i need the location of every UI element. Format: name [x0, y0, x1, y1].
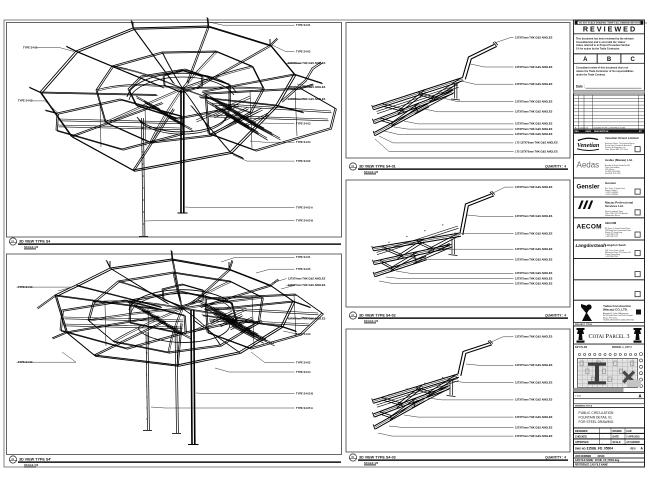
svg-text:1:1000: 1:1000: [575, 396, 582, 398]
svg-text:31520: 31520: [598, 455, 606, 458]
svg-text:Aedas: Aedas: [577, 161, 600, 170]
svg-text:Fax (853) 2875 3700: Fax (853) 2875 3700: [605, 173, 621, 175]
svg-text:127X75mm THK G&S ANGLES: 127X75mm THK G&S ANGLES: [515, 281, 553, 285]
svg-text:127X75mm THK G&S ANGLES: 127X75mm THK G&S ANGLES: [515, 127, 553, 131]
svg-text:CAD FILE NAME : 315UE_FD_050: CAD FILE NAME : 315UE_FD_05004.dwg: [575, 459, 620, 462]
svg-text:R E V I E W E D: R E V I E W E D: [583, 25, 635, 34]
svg-text:127X75mm THK G&S ANGLES: 127X75mm THK G&S ANGLES: [515, 380, 553, 384]
svg-text:DWG NO: DWG NO: [575, 448, 586, 451]
svg-text:3D VIEW TYPE S4-01: 3D VIEW TYPE S4-01: [359, 164, 396, 168]
svg-text:7-APR-2015: 7-APR-2015: [626, 435, 640, 438]
svg-text:Taipa, Macao SAR, P.R. China: Taipa, Macao SAR, P.R. China: [605, 148, 628, 151]
svg-text:COTAI PARCEL 3: COTAI PARCEL 3: [588, 333, 629, 340]
svg-text:127X75mm THK G&S ANGLES: 127X75mm THK G&S ANGLES: [515, 415, 553, 419]
svg-text:CAD: CAD: [626, 430, 631, 433]
svg-text:127X75mm THK G&S ANGLES: 127X75mm THK G&S ANGLES: [515, 110, 553, 114]
svg-text:JOB NUMBER: JOB NUMBER: [575, 455, 591, 458]
svg-text:B: B: [607, 57, 612, 63]
svg-text:SCALE: SCALE: [613, 441, 622, 444]
svg-text:TYPE S4-02: TYPE S4-02: [296, 159, 311, 163]
svg-text:127X75mm THK G&S ANGLES: 127X75mm THK G&S ANGLES: [515, 65, 553, 69]
svg-text:127X75mm THK G&S ANGLES: 127X75mm THK G&S ANGLES: [515, 276, 553, 280]
svg-text:SCALE 1/2: SCALE 1/2: [364, 461, 379, 465]
svg-text:TYPE S4-03: TYPE S4-03: [296, 121, 311, 125]
svg-text:SCALE 1/2: SCALE 1/2: [364, 319, 379, 323]
svg-text:L75 127X75mm THK G&S ANGLES: L75 127X75mm THK G&S ANGLES: [515, 149, 558, 153]
svg-text:127X75mm THK G&S ANGLES: 127X75mm THK G&S ANGLES: [288, 277, 326, 281]
svg-text:ISSUED FOR CONSTRUCTION: ISSUED FOR CONSTRUCTION: [594, 127, 626, 129]
svg-text:A: A: [583, 57, 588, 63]
svg-text:127X75mm THK G&S ANGLES: 127X75mm THK G&S ANGLES: [515, 82, 553, 86]
svg-text:TYPE S4-02: TYPE S4-02: [296, 50, 311, 54]
svg-text:Aedas (Macau) Ltd.: Aedas (Macau) Ltd.: [605, 158, 633, 162]
svg-text:LangdonSeah: LangdonSeah: [576, 243, 607, 248]
svg-text:TYPE S4-04: TYPE S4-04: [296, 370, 311, 374]
svg-text:QUANTITY : 4: QUANTITY : 4: [545, 455, 566, 459]
svg-text:TYPE S4-04: TYPE S4-04: [296, 140, 311, 144]
svg-text:t +852 2830 3500: t +852 2830 3500: [605, 255, 618, 258]
svg-text:da Amizade, Macau: da Amizade, Macau: [605, 214, 620, 217]
svg-text:TYPE S4-05 A: TYPE S4-05 A: [296, 206, 313, 210]
svg-text:f +353 1 6443501: f +353 1 6443501: [605, 194, 618, 196]
svg-text:KEY PLAN: KEY PLAN: [575, 346, 587, 349]
svg-text:TYPE S4-05 B: TYPE S4-05 B: [296, 218, 313, 222]
svg-text:Tel (853) 2870 3218 Fax (853): Tel (853) 2870 3218 Fax (853) 2870 3311: [603, 320, 634, 322]
svg-text:Date :: Date :: [576, 85, 585, 89]
svg-text:REV: REV: [631, 448, 636, 451]
svg-text:TYPE S4-03: TYPE S4-03: [296, 332, 311, 336]
svg-text:Venetian: Venetian: [577, 142, 600, 149]
svg-text:PUBLIC CIRCULATION: PUBLIC CIRCULATION: [579, 411, 615, 415]
svg-text:TYPE S4-05 B: TYPE S4-05 B: [296, 392, 313, 396]
svg-text:FOUNTAIN DETAIL 01: FOUNTAIN DETAIL 01: [579, 415, 612, 419]
svg-text:DATE: DATE: [586, 130, 592, 133]
svg-text:DRAWN: DRAWN: [613, 430, 622, 433]
svg-text:Langdon Seah: Langdon Seah: [605, 243, 626, 247]
svg-text:127X75mm THK G&S ANGLES: 127X75mm THK G&S ANGLES: [515, 271, 553, 275]
svg-text:Services Ltd.: Services Ltd.: [605, 204, 624, 208]
svg-text:QUANTITY : 4: QUANTITY : 4: [545, 164, 566, 168]
svg-text:3D VIEW TYPE S4': 3D VIEW TYPE S4': [19, 457, 51, 461]
svg-text:127X75mm THK G&S ANGLES: 127X75mm THK G&S ANGLES: [515, 335, 553, 339]
svg-text:QUANTITY : 4: QUANTITY : 4: [545, 313, 566, 317]
svg-text:TYPE S4-05 A: TYPE S4-05 A: [296, 406, 313, 410]
svg-text:5.4 for action by the Trade Co: 5.4 for action by the Trade Contractor.: [576, 48, 620, 51]
svg-text:127X75mm THK G&S ANGLES: 127X75mm THK G&S ANGLES: [515, 36, 553, 40]
svg-text:127X75mm THK G&S ANGLES: 127X75mm THK G&S ANGLES: [515, 257, 553, 261]
svg-text:3D VIEW TYPE S4-03: 3D VIEW TYPE S4-03: [359, 455, 396, 459]
svg-text:PARCEL 1, LOT 2: PARCEL 1, LOT 2: [612, 346, 632, 349]
svg-text:127X75mm THK G&S ANGLES: 127X75mm THK G&S ANGLES: [515, 434, 553, 438]
svg-text:SCALE 1/2: SCALE 1/2: [24, 245, 39, 249]
svg-text:TYPE S4-02: TYPE S4-02: [296, 361, 311, 365]
svg-text:127X75mm THK G&S ANGLES: 127X75mm THK G&S ANGLES: [515, 214, 553, 218]
svg-text:AECOM: AECOM: [577, 224, 602, 231]
svg-text:127X75mm THK G&S ANGLES: 127X75mm THK G&S ANGLES: [515, 132, 553, 136]
svg-text:DESIGNED: DESIGNED: [575, 430, 588, 433]
svg-text:127X75mm THK G&S ANGLES: 127X75mm THK G&S ANGLES: [515, 231, 553, 235]
svg-text:127X75mm THK G&S ANGLES: 127X75mm THK G&S ANGLES: [515, 425, 553, 429]
svg-text:f +852 2587 1877: f +852 2587 1877: [605, 236, 618, 238]
svg-text:SCALE 1/2: SCALE 1/2: [24, 463, 39, 467]
svg-text:DATE: DATE: [613, 435, 620, 438]
svg-text:TYPE S4-01: TYPE S4-01: [296, 255, 311, 259]
svg-text:APPROVED: APPROVED: [575, 441, 589, 444]
svg-text:3D VIEW TYPE S4: 3D VIEW TYPE S4: [19, 239, 51, 243]
svg-text:TYPE S4-05: TYPE S4-05: [296, 267, 311, 271]
svg-text:REFERENCE CAD FILE NAME: REFERENCE CAD FILE NAME: [575, 464, 608, 467]
svg-text:under the Trade Contract.: under the Trade Contract.: [576, 73, 606, 76]
svg-text:C: C: [631, 57, 636, 63]
svg-text:Gensler: Gensler: [605, 181, 617, 185]
svg-text:315UE_FD_05004: 315UE_FD_05004: [587, 447, 614, 451]
svg-text:127X75mm THK G&S ANGLES: 127X75mm THK G&S ANGLES: [515, 247, 553, 251]
svg-text:CHECKED: CHECKED: [575, 435, 587, 438]
svg-text:AECOM: AECOM: [605, 221, 617, 225]
svg-text:127X75mm THK G&S ANGLES: 127X75mm THK G&S ANGLES: [515, 363, 553, 367]
svg-text:04.05.15: 04.05.15: [580, 127, 589, 129]
svg-text:SCALE 1/2: SCALE 1/2: [364, 170, 379, 174]
svg-text:FOR STEEL DRAWING: FOR STEEL DRAWING: [579, 420, 614, 424]
svg-text:127X75mm THK G&S ANGLES: 127X75mm THK G&S ANGLES: [515, 99, 553, 103]
svg-text:AS SHOWN: AS SHOWN: [626, 441, 639, 444]
svg-text:127X75mm THK G&S ANGLES: 127X75mm THK G&S ANGLES: [515, 398, 553, 402]
svg-text:TYPE S4-01: TYPE S4-01: [296, 23, 311, 27]
svg-text:127X75mm THK G&S ANGLES: 127X75mm THK G&S ANGLES: [515, 185, 553, 189]
svg-text:127X75mm THK G&S ANGLES: 127X75mm THK G&S ANGLES: [515, 122, 553, 126]
svg-text:(Macau) CO.,LTD.: (Macau) CO.,LTD.: [603, 308, 628, 312]
svg-text:Gensler: Gensler: [577, 184, 601, 191]
svg-text:3D VIEW TYPE S4-02: 3D VIEW TYPE S4-02: [359, 313, 396, 317]
svg-text:Venetian Orient Limited: Venetian Orient Limited: [605, 136, 639, 140]
svg-text:L75 127X75mm THK G&S ANGLES: L75 127X75mm THK G&S ANGLES: [515, 141, 558, 145]
